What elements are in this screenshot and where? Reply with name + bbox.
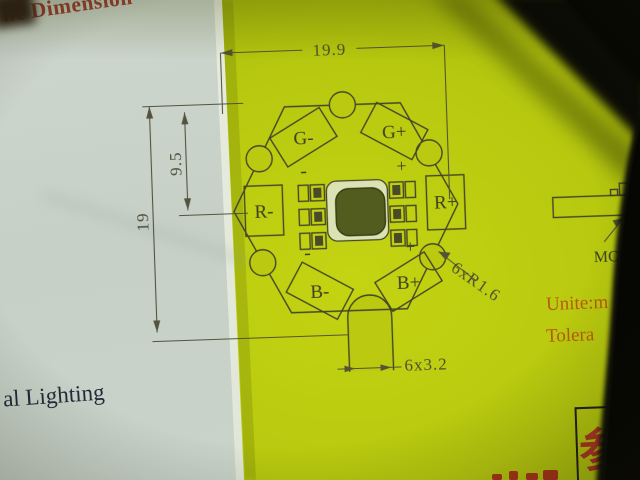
- notch-top: [329, 91, 356, 118]
- photo-of-datasheet: G- G+ R- R+ B- B+ - + - +: [0, 0, 640, 480]
- pad-label-r-minus: R-: [254, 201, 274, 223]
- mcpcb-label: MCP: [594, 248, 628, 266]
- dim-width-label: 19.9: [312, 40, 346, 60]
- ext-line-bottom: [152, 335, 348, 342]
- pad-label-g-plus: G+: [382, 122, 407, 144]
- ext-line-mid: [179, 213, 248, 215]
- dim-height: 19: [129, 106, 160, 333]
- ext-line-top: [142, 103, 243, 107]
- bottom-tab: [347, 294, 394, 371]
- pad-label-r-plus: R+: [434, 192, 458, 214]
- led-package-lens: [335, 187, 386, 236]
- polarity-top-minus: -: [300, 160, 307, 182]
- dim-notch-label: 6xR1.6: [448, 258, 504, 305]
- pad-label-g-minus: G-: [293, 128, 314, 150]
- notch-upper-right: [416, 139, 443, 166]
- red-mark-fragment: [526, 473, 538, 480]
- stamp-character: 参: [577, 413, 626, 480]
- notch-lower-left: [249, 249, 276, 276]
- dim-half-height: 9.5: [165, 112, 192, 211]
- dim-height-label: 19: [133, 212, 153, 232]
- red-mark-fragment: [509, 471, 518, 480]
- pad-label-b-minus: B-: [310, 281, 330, 303]
- unit-label: Unite:m: [546, 292, 609, 316]
- dim-half-height-label: 9.5: [166, 151, 186, 176]
- tolerance-label: Tolera: [546, 324, 595, 348]
- polarity-top-plus: +: [396, 156, 407, 176]
- led-solder-pads-left: [298, 185, 326, 250]
- red-mark-fragment: [543, 470, 558, 480]
- pad-label-b-plus: B+: [397, 272, 421, 294]
- dimension-drawing-svg: G- G+ R- R+ B- B+ - + - +: [0, 0, 640, 480]
- leader-notch: 6xR1.6: [439, 249, 505, 307]
- red-mark-fragment: [492, 474, 502, 480]
- dim-tab-label: 6x3.2: [404, 354, 448, 374]
- mcpcb-side-view: MCP: [552, 182, 640, 267]
- notch-upper-left: [246, 145, 273, 172]
